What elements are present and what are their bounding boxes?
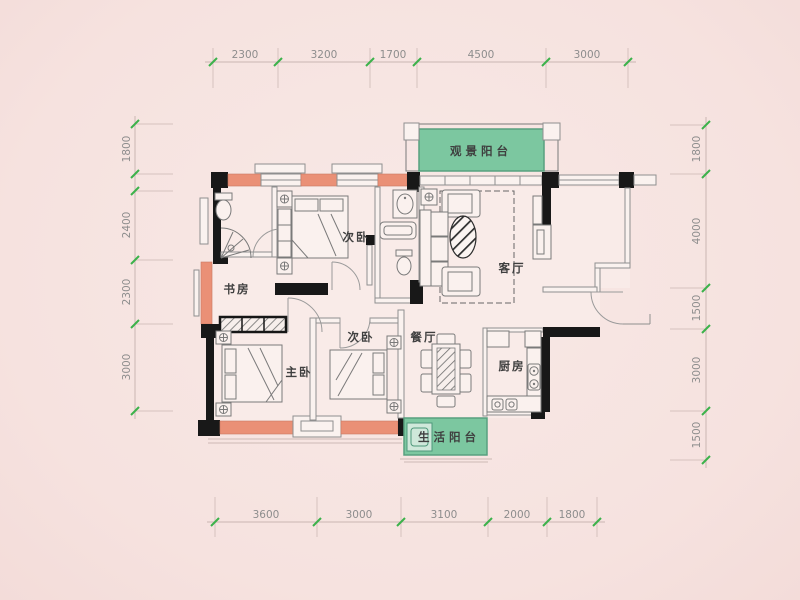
dim-right-3: 1500 bbox=[691, 295, 703, 322]
dim-top-3: 1700 bbox=[380, 49, 407, 61]
dim-bottom-5: 1800 bbox=[559, 509, 586, 521]
chair-icon bbox=[421, 374, 433, 392]
floor-plan-canvas: 2300 3200 1700 4500 3000 3600 3000 3100 … bbox=[0, 0, 800, 600]
cabinet-icon bbox=[278, 209, 291, 257]
room-label-kitchen: 厨房 bbox=[499, 359, 526, 373]
room-label-view-balcony: 观景阳台 bbox=[450, 144, 512, 158]
coffee-table-icon bbox=[450, 216, 476, 258]
room-label-master: 主卧 bbox=[286, 365, 313, 379]
dim-left-3: 2300 bbox=[121, 279, 133, 306]
dim-top-1: 2300 bbox=[232, 49, 259, 61]
room-label-life-balcony: 生活阳台 bbox=[418, 430, 480, 444]
toilet-icon bbox=[215, 193, 232, 200]
tv-cabinet-icon bbox=[533, 196, 542, 224]
dimension-chain-left: 1800 2400 2300 3000 bbox=[121, 116, 173, 419]
dim-right-5: 1500 bbox=[691, 422, 703, 449]
dim-right-1: 1800 bbox=[691, 136, 703, 163]
room-label-living: 客厅 bbox=[498, 261, 526, 275]
bathtub-icon bbox=[380, 222, 416, 239]
wardrobe-icon bbox=[220, 317, 286, 332]
dim-bottom-1: 3600 bbox=[253, 509, 280, 521]
dimension-chain-top: 2300 3200 1700 4500 3000 bbox=[205, 48, 636, 88]
dim-right-4: 3000 bbox=[691, 357, 703, 384]
sofa-icon bbox=[420, 210, 431, 286]
dim-top-4: 4500 bbox=[468, 49, 495, 61]
dimension-chain-right: 1800 4000 1500 3000 1500 bbox=[670, 117, 710, 468]
room-label-bedroom-mid: 次卧 bbox=[348, 330, 375, 344]
chair-icon bbox=[421, 350, 433, 368]
dim-left-1: 1800 bbox=[121, 136, 133, 163]
dim-top-5: 3000 bbox=[574, 49, 601, 61]
dim-left-2: 2400 bbox=[121, 212, 133, 239]
room-label-dining: 餐厅 bbox=[410, 330, 438, 344]
cabinet-icon bbox=[525, 331, 541, 347]
dim-top-2: 3200 bbox=[311, 49, 338, 61]
chair-icon bbox=[437, 334, 455, 345]
dim-left-4: 3000 bbox=[121, 354, 133, 381]
dim-bottom-2: 3000 bbox=[346, 509, 373, 521]
dimension-chain-bottom: 3600 3000 3100 2000 1800 bbox=[207, 497, 605, 537]
cabinet-icon bbox=[487, 331, 509, 347]
chair-icon bbox=[459, 350, 471, 368]
dim-bottom-4: 2000 bbox=[504, 509, 531, 521]
chair-icon bbox=[459, 374, 471, 392]
chair-icon bbox=[437, 396, 455, 407]
floor-plan: 2300 3200 1700 4500 3000 3600 3000 3100 … bbox=[0, 0, 800, 600]
dim-bottom-3: 3100 bbox=[431, 509, 458, 521]
room-label-bedroom-top: 次卧 bbox=[343, 230, 370, 244]
room-label-study: 书房 bbox=[224, 282, 251, 296]
toilet-icon bbox=[396, 250, 412, 256]
dim-right-2: 4000 bbox=[691, 218, 703, 245]
